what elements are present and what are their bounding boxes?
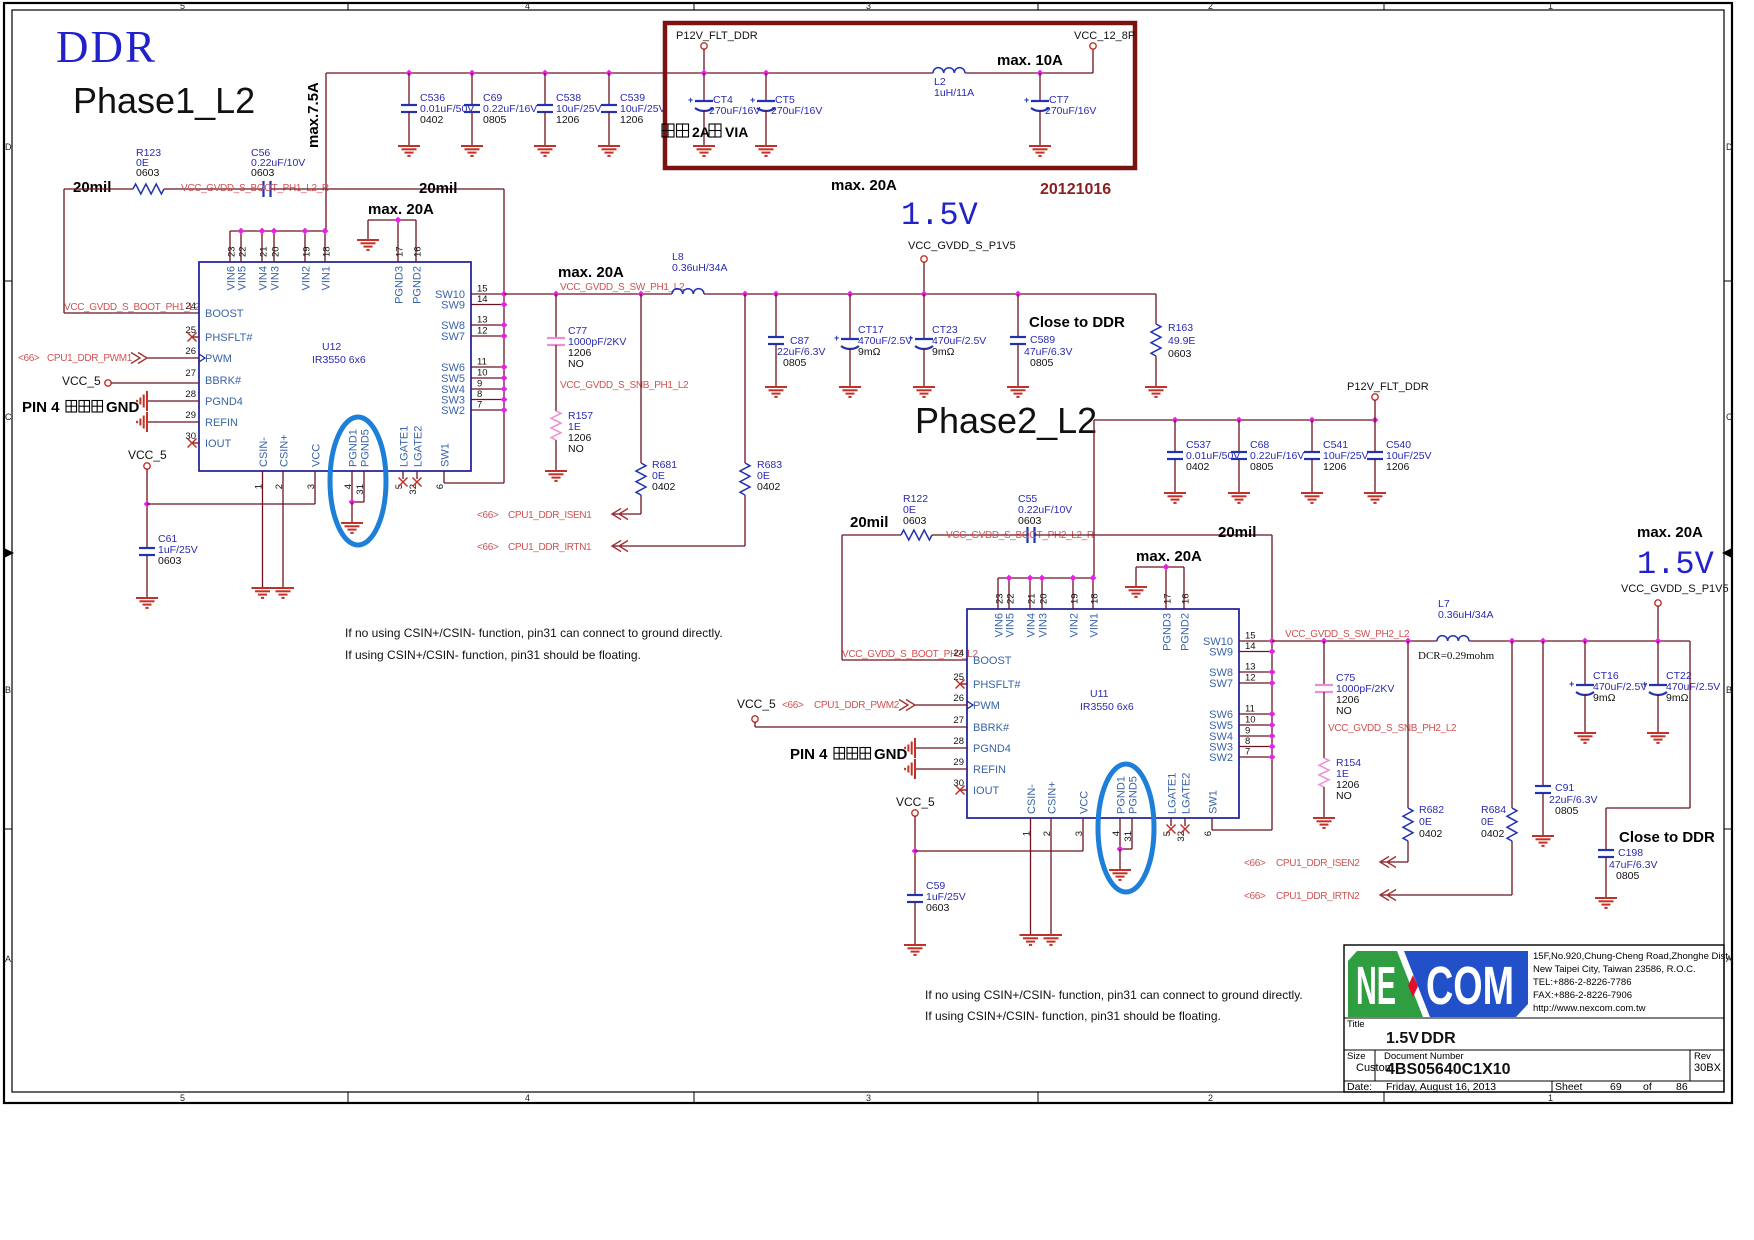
svg-text:86: 86 <box>1676 1081 1688 1093</box>
svg-text:0603: 0603 <box>251 167 275 179</box>
svg-text:PGND3: PGND3 <box>394 266 406 304</box>
svg-text:PGND2: PGND2 <box>1180 613 1192 651</box>
svg-text:24: 24 <box>953 648 964 659</box>
svg-text:2: 2 <box>1208 1 1213 11</box>
svg-text:12: 12 <box>1245 673 1256 684</box>
svg-text:PIN 4: PIN 4 <box>790 746 828 763</box>
svg-text:0603: 0603 <box>158 555 182 567</box>
svg-text:Close to DDR: Close to DDR <box>1619 829 1715 846</box>
svg-text:SW9: SW9 <box>1209 647 1233 659</box>
svg-text:D: D <box>1726 142 1733 152</box>
svg-text:0402: 0402 <box>420 114 444 126</box>
svg-text:VCC_GVDD_S_BOOT_PH1_L2: VCC_GVDD_S_BOOT_PH1_L2 <box>64 302 200 313</box>
svg-text:30BX: 30BX <box>1694 1062 1722 1074</box>
svg-text:VIN2: VIN2 <box>301 266 313 290</box>
svg-text:VCC_5: VCC_5 <box>737 697 776 711</box>
svg-text:20mil: 20mil <box>73 179 111 196</box>
svg-text:270uF/16V: 270uF/16V <box>1045 105 1096 117</box>
svg-text:C: C <box>5 412 12 422</box>
svg-text:VIN1: VIN1 <box>321 266 333 290</box>
svg-text:10: 10 <box>477 368 488 379</box>
svg-text:If no using CSIN+/CSIN- functi: If no using CSIN+/CSIN- function, pin31 … <box>925 988 1303 1002</box>
svg-text:BOOST: BOOST <box>973 655 1012 667</box>
svg-text:VCC_GVDD_S_SNB_PH2_L2: VCC_GVDD_S_SNB_PH2_L2 <box>1328 723 1457 734</box>
svg-text:+: + <box>1569 679 1574 689</box>
svg-text:VCC_5: VCC_5 <box>896 795 935 809</box>
svg-text:CSIN+: CSIN+ <box>279 434 291 467</box>
svg-text:6: 6 <box>435 484 446 489</box>
svg-text:NO: NO <box>1336 790 1352 802</box>
svg-text:LGATE1: LGATE1 <box>1167 773 1179 814</box>
svg-text:1: 1 <box>1548 1093 1553 1103</box>
svg-text:If no using CSIN+/CSIN- functi: If no using CSIN+/CSIN- function, pin31 … <box>345 626 723 640</box>
svg-text:GND: GND <box>874 746 908 763</box>
svg-text:10: 10 <box>1245 715 1256 726</box>
svg-text:49.9E: 49.9E <box>1168 335 1195 347</box>
svg-text:0805: 0805 <box>1555 805 1579 817</box>
svg-text:20mil: 20mil <box>419 180 457 197</box>
svg-text:Date:: Date: <box>1347 1081 1372 1093</box>
svg-text:23: 23 <box>995 593 1006 604</box>
svg-text:PGND1: PGND1 <box>348 429 360 467</box>
svg-text:B: B <box>1726 685 1732 695</box>
svg-text:DDR: DDR <box>1421 1030 1456 1047</box>
svg-text:C589: C589 <box>1030 334 1055 346</box>
svg-text:8: 8 <box>1245 736 1250 747</box>
svg-text:R682: R682 <box>1419 804 1444 816</box>
svg-text:If using CSIN+/CSIN- function,: If using CSIN+/CSIN- function, pin31 sho… <box>925 1009 1221 1023</box>
svg-text:CPU1_DDR_ISEN1: CPU1_DDR_ISEN1 <box>508 510 592 521</box>
svg-text:<66>: <66> <box>477 510 499 521</box>
svg-text:4: 4 <box>525 1093 530 1103</box>
svg-text:0603: 0603 <box>903 515 927 527</box>
svg-text:SW2: SW2 <box>1209 752 1233 764</box>
svg-text:NO: NO <box>1336 705 1352 717</box>
svg-text:VCC_5: VCC_5 <box>128 448 167 462</box>
svg-text:0603: 0603 <box>1018 515 1042 527</box>
svg-text:0402: 0402 <box>1419 828 1443 840</box>
svg-text:<66>: <66> <box>782 700 804 711</box>
svg-text:<66>: <66> <box>477 542 499 553</box>
svg-text:CPU1_DDR_IRTN1: CPU1_DDR_IRTN1 <box>508 542 592 553</box>
svg-text:PGND3: PGND3 <box>1162 613 1174 651</box>
svg-text:Friday, August 16, 2013: Friday, August 16, 2013 <box>1386 1081 1496 1093</box>
svg-text:VIN5: VIN5 <box>237 266 249 290</box>
svg-text:3: 3 <box>866 1 871 11</box>
svg-text:REFIN: REFIN <box>205 417 238 429</box>
svg-text:16: 16 <box>413 246 424 257</box>
svg-text:Size: Size <box>1347 1051 1365 1062</box>
svg-text:20: 20 <box>1039 593 1050 604</box>
svg-text:2A: 2A <box>692 124 710 140</box>
svg-text:of: of <box>1643 1081 1652 1093</box>
svg-text:max. 20A: max. 20A <box>831 177 897 194</box>
svg-text:9mΩ: 9mΩ <box>932 346 955 358</box>
svg-text:PGND4: PGND4 <box>973 743 1011 755</box>
svg-text:1: 1 <box>1548 1 1553 11</box>
svg-text:http://www.nexcom.com.tw: http://www.nexcom.com.tw <box>1533 1003 1646 1014</box>
svg-text:1uH/11A: 1uH/11A <box>934 87 974 99</box>
svg-text:GND: GND <box>106 399 140 416</box>
svg-text:15: 15 <box>1245 631 1256 642</box>
svg-text:4BS05640C1X10: 4BS05640C1X10 <box>1386 1061 1511 1078</box>
svg-text:15F,No.920,Chung-Cheng Road,Zh: 15F,No.920,Chung-Cheng Road,Zhonghe Dist… <box>1533 951 1731 962</box>
svg-text:CPU1_DDR_PWM2: CPU1_DDR_PWM2 <box>814 700 900 711</box>
svg-text:9mΩ: 9mΩ <box>1593 692 1616 704</box>
svg-text:CPU1_DDR_ISEN2: CPU1_DDR_ISEN2 <box>1276 858 1360 869</box>
svg-text:SW1: SW1 <box>1208 790 1220 814</box>
svg-text:Close to DDR: Close to DDR <box>1029 314 1125 331</box>
svg-text:15: 15 <box>477 284 488 295</box>
svg-text:TEL:+886-2-8226-7786: TEL:+886-2-8226-7786 <box>1533 977 1632 988</box>
svg-text:13: 13 <box>1245 662 1256 673</box>
svg-text:0603: 0603 <box>926 902 950 914</box>
svg-text:REFIN: REFIN <box>973 764 1006 776</box>
svg-text:VIN5: VIN5 <box>1005 613 1017 637</box>
svg-text:max.7.5A: max.7.5A <box>305 82 322 148</box>
svg-text:2: 2 <box>1208 1093 1213 1103</box>
svg-text:COM: COM <box>1426 956 1514 1016</box>
svg-text:6: 6 <box>1203 831 1214 836</box>
svg-text:+: + <box>1642 679 1647 689</box>
svg-text:<66>: <66> <box>1244 858 1266 869</box>
svg-text:0805: 0805 <box>1616 870 1640 882</box>
svg-text:IR3550 6x6: IR3550 6x6 <box>1080 701 1134 713</box>
svg-text:8: 8 <box>477 389 482 400</box>
svg-text:0402: 0402 <box>652 481 676 493</box>
svg-text:0805: 0805 <box>783 357 807 369</box>
svg-text:B: B <box>5 685 11 695</box>
svg-text:0603: 0603 <box>136 167 160 179</box>
svg-text:69: 69 <box>1610 1081 1622 1093</box>
svg-text:29: 29 <box>953 757 964 768</box>
svg-text:21: 21 <box>259 246 270 257</box>
svg-text:VIN4: VIN4 <box>258 266 270 290</box>
svg-text:22: 22 <box>238 246 249 257</box>
svg-text:U12: U12 <box>322 341 341 353</box>
svg-text:18: 18 <box>1090 593 1101 604</box>
svg-text:17: 17 <box>1163 593 1174 604</box>
svg-text:SW7: SW7 <box>1209 678 1233 690</box>
svg-text:0805: 0805 <box>1030 357 1054 369</box>
svg-text:20mil: 20mil <box>1218 524 1256 541</box>
svg-text:VCC_GVDD_S_P1V5: VCC_GVDD_S_P1V5 <box>1621 583 1729 595</box>
svg-text:0.36uH/34A: 0.36uH/34A <box>1438 609 1493 621</box>
svg-text:11: 11 <box>477 357 487 368</box>
svg-text:23: 23 <box>227 246 238 257</box>
svg-text:19: 19 <box>302 246 313 257</box>
svg-text:LGATE1: LGATE1 <box>399 426 411 467</box>
svg-text:7: 7 <box>477 400 482 411</box>
svg-text:270uF/16V: 270uF/16V <box>709 105 760 117</box>
svg-text:20: 20 <box>271 246 282 257</box>
svg-text:max. 10A: max. 10A <box>997 52 1063 69</box>
svg-text:D: D <box>5 142 12 152</box>
svg-text:LGATE2: LGATE2 <box>1181 773 1193 814</box>
svg-text:28: 28 <box>953 736 964 747</box>
svg-text:max. 20A: max. 20A <box>368 201 434 218</box>
svg-text:VCC_GVDD_S_SW_PH2_L2: VCC_GVDD_S_SW_PH2_L2 <box>1285 629 1410 640</box>
svg-text:P12V_FLT_DDR: P12V_FLT_DDR <box>676 30 758 42</box>
svg-text:VIN3: VIN3 <box>1038 613 1050 637</box>
svg-text:9mΩ: 9mΩ <box>858 346 881 358</box>
svg-text:SW7: SW7 <box>441 331 465 343</box>
svg-text:BOOST: BOOST <box>205 308 244 320</box>
svg-text:5: 5 <box>180 1 185 11</box>
svg-text:SW9: SW9 <box>441 300 465 312</box>
svg-text:VIN1: VIN1 <box>1089 613 1101 637</box>
svg-text:LGATE2: LGATE2 <box>413 426 425 467</box>
svg-text:0603: 0603 <box>1168 348 1192 360</box>
svg-text:+: + <box>834 333 839 343</box>
svg-text:0402: 0402 <box>757 481 781 493</box>
svg-text:FAX:+886-2-8226-7906: FAX:+886-2-8226-7906 <box>1533 990 1632 1001</box>
svg-text:Title: Title <box>1347 1019 1365 1030</box>
svg-text:14: 14 <box>477 294 488 305</box>
svg-text:Sheet: Sheet <box>1555 1081 1583 1093</box>
svg-text:PHSFLT#: PHSFLT# <box>973 679 1021 691</box>
svg-text:NE: NE <box>1356 956 1396 1016</box>
svg-text:PHSFLT#: PHSFLT# <box>205 332 253 344</box>
svg-text:PGND4: PGND4 <box>205 396 243 408</box>
svg-text:Rev: Rev <box>1694 1051 1711 1062</box>
svg-text:27: 27 <box>953 715 964 726</box>
svg-text:+: + <box>1024 95 1029 105</box>
svg-text:0805: 0805 <box>483 114 507 126</box>
svg-text:New Taipei City, Taiwan 23586,: New Taipei City, Taiwan 23586, R.O.C. <box>1533 964 1696 975</box>
svg-text:9: 9 <box>1245 726 1250 737</box>
svg-text:VCC: VCC <box>1079 791 1091 814</box>
svg-text:13: 13 <box>477 315 488 326</box>
svg-text:DCR=0.29mohm: DCR=0.29mohm <box>1418 650 1495 662</box>
svg-text:VCC_GVDD_S_P1V5: VCC_GVDD_S_P1V5 <box>908 240 1016 252</box>
svg-text:SW2: SW2 <box>441 405 465 417</box>
svg-text:0E: 0E <box>1419 816 1432 828</box>
svg-text:VIN2: VIN2 <box>1069 613 1081 637</box>
svg-text:max. 20A: max. 20A <box>1637 524 1703 541</box>
svg-text:11: 11 <box>1245 704 1255 715</box>
svg-text:DDR: DDR <box>56 22 157 72</box>
svg-text:12: 12 <box>477 326 488 337</box>
svg-text:0.36uH/34A: 0.36uH/34A <box>672 262 727 274</box>
svg-text:1206: 1206 <box>556 114 580 126</box>
svg-text:CPU1_DDR_PWM1: CPU1_DDR_PWM1 <box>47 353 133 364</box>
svg-text:26: 26 <box>953 693 964 704</box>
svg-text:VCC_12_8P: VCC_12_8P <box>1074 30 1135 42</box>
svg-text:CPU1_DDR_IRTN2: CPU1_DDR_IRTN2 <box>1276 891 1360 902</box>
svg-text:VCC_GVDD_S_SNB_PH1_L2: VCC_GVDD_S_SNB_PH1_L2 <box>560 380 689 391</box>
svg-text:IOUT: IOUT <box>973 785 1000 797</box>
svg-text:26: 26 <box>185 346 196 357</box>
svg-text:+: + <box>750 95 755 105</box>
svg-text:1206: 1206 <box>620 114 644 126</box>
svg-text:<66>: <66> <box>18 353 40 364</box>
svg-text:16: 16 <box>1181 593 1192 604</box>
svg-text:PWM: PWM <box>973 700 1000 712</box>
svg-text:3: 3 <box>866 1093 871 1103</box>
svg-text:20mil: 20mil <box>850 514 888 531</box>
svg-text:21: 21 <box>1027 593 1038 604</box>
svg-text:1206: 1206 <box>1386 461 1410 473</box>
svg-text:22: 22 <box>1006 593 1017 604</box>
svg-text:BBRK#: BBRK# <box>205 375 242 387</box>
svg-text:PGND5: PGND5 <box>1128 776 1140 814</box>
svg-text:+: + <box>688 95 693 105</box>
svg-text:9: 9 <box>477 379 482 390</box>
svg-text:VCC_5: VCC_5 <box>62 374 101 388</box>
svg-text:CSIN-: CSIN- <box>258 437 270 467</box>
svg-text:5: 5 <box>180 1093 185 1103</box>
svg-text:max. 20A: max. 20A <box>1136 548 1202 565</box>
svg-text:max. 20A: max. 20A <box>558 264 624 281</box>
svg-text:VIA: VIA <box>725 124 748 140</box>
svg-text:19: 19 <box>1070 593 1081 604</box>
svg-text:VIN4: VIN4 <box>1026 613 1038 637</box>
svg-text:NO: NO <box>568 443 584 455</box>
svg-text:PGND5: PGND5 <box>360 429 372 467</box>
svg-text:0805: 0805 <box>1250 461 1274 473</box>
svg-text:VIN3: VIN3 <box>270 266 282 290</box>
svg-text:+: + <box>908 333 913 343</box>
svg-text:29: 29 <box>185 410 196 421</box>
svg-text:C: C <box>1726 412 1733 422</box>
svg-text:20121016: 20121016 <box>1040 181 1111 198</box>
svg-text:1206: 1206 <box>1323 461 1347 473</box>
svg-text:IR3550 6x6: IR3550 6x6 <box>312 354 366 366</box>
svg-text:PGND2: PGND2 <box>412 266 424 304</box>
svg-text:Phase1_L2: Phase1_L2 <box>73 80 255 121</box>
svg-text:1.5V: 1.5V <box>901 197 979 234</box>
svg-text:0E: 0E <box>1481 816 1494 828</box>
svg-text:1.5V: 1.5V <box>1637 546 1715 583</box>
svg-text:4: 4 <box>525 1 530 11</box>
svg-text:1.5V: 1.5V <box>1386 1030 1419 1047</box>
svg-text:VCC: VCC <box>311 444 323 467</box>
svg-text:14: 14 <box>1245 641 1256 652</box>
svg-text:PGND1: PGND1 <box>1116 776 1128 814</box>
svg-text:P12V_FLT_DDR: P12V_FLT_DDR <box>1347 381 1429 393</box>
svg-text:NO: NO <box>568 358 584 370</box>
svg-text:C198: C198 <box>1618 847 1643 859</box>
svg-text:SW1: SW1 <box>440 443 452 467</box>
svg-text:A: A <box>5 954 11 964</box>
svg-text:If using CSIN+/CSIN- function,: If using CSIN+/CSIN- function, pin31 sho… <box>345 648 641 662</box>
svg-text:0402: 0402 <box>1186 461 1210 473</box>
svg-text:Phase2_L2: Phase2_L2 <box>915 400 1097 441</box>
svg-text:PWM: PWM <box>205 353 232 365</box>
svg-text:7: 7 <box>1245 747 1250 758</box>
svg-text:28: 28 <box>185 389 196 400</box>
svg-text:IOUT: IOUT <box>205 438 232 450</box>
svg-text:24: 24 <box>185 301 196 312</box>
svg-text:R163: R163 <box>1168 322 1193 334</box>
svg-text:PIN 4: PIN 4 <box>22 399 60 416</box>
svg-text:9mΩ: 9mΩ <box>1666 692 1689 704</box>
svg-text:0402: 0402 <box>1481 828 1505 840</box>
svg-text:R684: R684 <box>1481 804 1506 816</box>
svg-text:C91: C91 <box>1555 782 1574 794</box>
svg-text:17: 17 <box>395 246 406 257</box>
svg-text:CSIN+: CSIN+ <box>1047 781 1059 814</box>
svg-text:270uF/16V: 270uF/16V <box>771 105 822 117</box>
svg-text:BBRK#: BBRK# <box>973 722 1010 734</box>
svg-text:27: 27 <box>185 368 196 379</box>
svg-text:<66>: <66> <box>1244 891 1266 902</box>
svg-text:18: 18 <box>322 246 333 257</box>
svg-text:VCC_GVDD_S_SW_PH1_L2: VCC_GVDD_S_SW_PH1_L2 <box>560 282 685 293</box>
svg-text:U11: U11 <box>1090 688 1109 700</box>
svg-text:CSIN-: CSIN- <box>1026 784 1038 814</box>
